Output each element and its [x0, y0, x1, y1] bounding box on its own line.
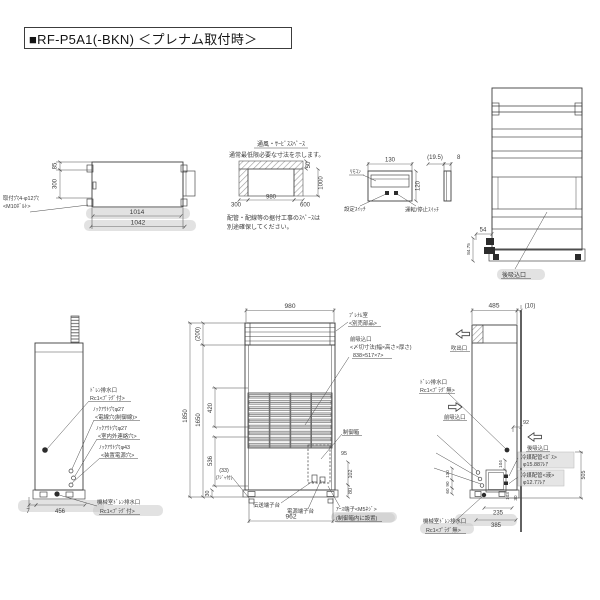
liquid-pipe-joint: [504, 482, 508, 486]
blow-outlet: [472, 325, 483, 343]
dim-30: 30: [513, 495, 518, 501]
top-view: 1014 1042 85 300 取付穴4-φ12穴 <M10ﾎﾞﾙﾄ>: [3, 162, 196, 231]
machine-drain-label-1: 機械室ﾄﾞﾚﾝ排水口: [97, 498, 140, 506]
dim-385: 385: [491, 523, 502, 529]
drain-label-2: Rc1<ﾌﾟﾗｸﾞ付>: [90, 394, 125, 402]
dim-102: 102: [348, 470, 354, 479]
plenum-label-2: <別売部品>: [349, 319, 377, 327]
machine-drain-label-1: 機械室ﾄﾞﾚﾝ排水口: [423, 517, 466, 525]
service-space-view: 通風・ｻｰﾋﾞｽｽﾍﾟｰｽ 通常最低限必要な寸法を示します。 300 980 6…: [227, 140, 325, 231]
service-space-heading: 通風・ｻｰﾋﾞｽｽﾍﾟｰｽ: [257, 140, 305, 148]
rear-inlet-label: 後吸込口: [527, 444, 549, 452]
rear-inlet-label: 後吸込口: [502, 271, 526, 279]
blow-outlet-arrow-icon: [456, 330, 470, 338]
knockout-hole: [480, 484, 484, 488]
base: [243, 490, 338, 497]
front-inlet-label: 前吸込口: [444, 413, 466, 421]
dim-inner-width: 1014: [130, 209, 145, 216]
setting-switch-label: 設定ｽｲｯﾁ: [344, 205, 366, 213]
dim-235: 235: [493, 511, 504, 517]
dim-outer-width: 1042: [131, 220, 146, 227]
dim-width: 130: [385, 158, 396, 164]
drain-outlet: [42, 447, 48, 453]
mount-hole-label: 取付穴4-φ12穴: [3, 194, 39, 202]
plenum-label-1: ﾌﾟﾚﾅﾑ室: [349, 311, 368, 319]
knockout27a-label-2: <電線穴(制御線)>: [95, 413, 137, 421]
remote-label: ﾘﾓｺﾝ: [350, 169, 361, 176]
left-side-view: 7 456 ﾄﾞﾚﾝ排水口 Rc1<ﾌﾟﾗｸﾞ付> ﾉｯｸｱｳﾄ穴φ27 <電線…: [18, 316, 163, 516]
control-box-label: 制御箱: [343, 428, 360, 436]
dim-top: 50: [306, 161, 312, 168]
panel-outline: [368, 171, 412, 201]
dim-505: 505: [581, 471, 587, 480]
right-side-view: 485 (10) 吹出口 ﾄﾞﾚﾝ排水口 Rc1<ﾌﾟﾗｸﾞ無> 前吸込口 92…: [419, 303, 587, 535]
gas-pipe-label-2: φ15.88ﾌﾚｱ: [523, 461, 548, 468]
dim-30: 30: [205, 491, 211, 497]
drain-label-1: ﾄﾞﾚﾝ排水口: [90, 386, 117, 394]
machine-drain-outlet: [54, 491, 59, 496]
plenum-side-profile: [71, 316, 79, 343]
earth-terminal-label-1: ｱｰｽ端子<M5ﾈｼﾞ>: [336, 505, 377, 513]
dim-90: 90: [445, 481, 450, 487]
adjuster-foot: [328, 499, 333, 503]
dim-33: (33): [219, 468, 229, 474]
foot: [248, 492, 255, 497]
plenum-chamber: [245, 323, 335, 345]
band: [492, 151, 582, 158]
dim-1650: 1650: [196, 413, 202, 427]
dim-980: 980: [284, 303, 295, 310]
dim-536: 536: [208, 455, 214, 466]
knockout27b-label-1: ﾉｯｸｱｳﾄ穴φ27: [96, 424, 127, 432]
liquid-pipe-label-2: φ12.7ﾌﾚｱ: [523, 479, 545, 486]
drain-fitting: [486, 238, 494, 245]
dim-95: 95: [341, 451, 347, 457]
dim-104: 104: [498, 460, 503, 468]
dim-130: 130: [445, 470, 450, 478]
run-stop-switch-label: 運転/停止ｽｲｯﾁ: [405, 206, 439, 214]
drain-fitting: [484, 247, 495, 254]
dim-depth: 300: [53, 178, 59, 189]
knockout-hole: [478, 477, 482, 481]
grille-mullion: [290, 393, 292, 448]
front-inlet-label-2: <〆切寸法(幅×高さ×厚さ): [350, 343, 412, 351]
clearance-wall-left: [239, 169, 248, 196]
dim-depth-top: 85: [53, 162, 59, 169]
drawing-canvas: 1014 1042 85 300 取付穴4-φ12穴 <M10ﾎﾞﾙﾄ> 通風・…: [0, 0, 600, 600]
machine-drain-label-2: Rc1<ﾌﾟﾗｸﾞ付>: [100, 507, 135, 515]
blow-outlet-label: 吹出口: [451, 344, 467, 352]
side-protrusion: [183, 171, 195, 196]
machine-compartment: [486, 470, 506, 492]
clearance-wall-right: [294, 169, 303, 196]
rear-view-dimensions: [473, 212, 547, 269]
rail-bracket: [575, 103, 582, 115]
dim-side: 1000: [319, 176, 325, 190]
dim-92: 92: [523, 420, 529, 426]
rear-view: 54 84.75 後吸込口: [466, 88, 585, 280]
knockout-hole: [72, 476, 76, 480]
foot: [575, 254, 581, 260]
dim-485: 485: [488, 303, 499, 310]
liquid-pipe-label-1: 冷媒配管<液>: [521, 471, 554, 479]
panel-side-outline: [444, 171, 451, 201]
gas-pipe-label-1: 冷媒配管<ｶﾞｽ>: [521, 453, 557, 461]
left-side-dimensions: [29, 401, 100, 509]
machine-drain-label-2: Rc1<ﾌﾟﾗｸﾞ無>: [426, 526, 461, 534]
remote-display: [371, 175, 409, 187]
dim-1850: 1850: [183, 409, 189, 423]
foot: [40, 492, 47, 497]
dim-10: (10): [525, 304, 536, 310]
dim-left: 300: [231, 203, 242, 209]
dim-80: 80: [348, 488, 354, 494]
band: [492, 217, 582, 229]
rear-inlet-opening: [492, 177, 582, 209]
dim-right: 600: [300, 203, 311, 209]
foot: [493, 254, 499, 260]
unit-outline: [35, 343, 83, 490]
base: [489, 249, 585, 261]
knockout43-label-2: <装置電源穴>: [101, 451, 134, 459]
dim-456: 456: [55, 509, 66, 515]
knockout43-label-1: ﾉｯｸｱｳﾄ穴φ43: [99, 443, 130, 451]
knockout-hole: [476, 471, 480, 475]
unit-outline: [472, 325, 517, 490]
mount-tab: [181, 199, 187, 206]
control-box: [308, 445, 330, 483]
compressor: [489, 473, 504, 490]
dim-60: 60: [445, 488, 450, 494]
grille-mullion: [310, 393, 312, 448]
grille-mullion: [269, 393, 271, 448]
dim-center: 980: [266, 195, 277, 201]
power-terminal-label: 電源端子台: [287, 507, 314, 515]
foot: [66, 492, 73, 497]
power-terminal: [320, 477, 325, 482]
front-inlet-label-1: 前吸込口: [350, 335, 372, 343]
control-panel-dimensions: [360, 162, 451, 206]
knockout-hole: [69, 469, 73, 473]
knockout-hole: [69, 483, 73, 487]
knockout27b-label-2: <室内外連絡穴>: [98, 432, 137, 440]
edge-detail: [93, 182, 96, 189]
rear-inlet-arrow-icon: [528, 433, 542, 441]
earth-terminal-label-2: (制御箱内に設置): [336, 514, 378, 522]
dim-200: (200): [196, 327, 202, 341]
clearance-wall-top: [239, 161, 303, 169]
service-note-1: 配管・配線等の据付工事のｽﾍﾟｰｽは: [227, 214, 320, 222]
band: [492, 129, 582, 137]
drawing-sheet: ■RF-P5A1(-BKN) ＜プレナム取付時＞: [0, 0, 600, 600]
drain-label-1: ﾄﾞﾚﾝ排水口: [420, 378, 447, 386]
front-inlet-arrow-icon: [449, 403, 463, 411]
gas-pipe-joint: [504, 475, 508, 479]
front-view: 980 (200) 1850 1650 420 536 (33) (ｱｼﾞｬ付)…: [183, 303, 412, 523]
control-panel-view: 130 120 (19.5) 8 ﾘﾓｺﾝ 設定ｽｲｯﾁ 運転/停止ｽｲｯﾁ: [344, 155, 461, 214]
dim-depth: (19.5): [427, 155, 443, 161]
mount-hole-label2: <M10ﾎﾞﾙﾄ>: [3, 203, 31, 210]
service-space-subheading: 通常最低限必要な寸法を示します。: [229, 151, 324, 159]
dim-thickness: 8: [457, 155, 461, 161]
dim-54: 54: [480, 228, 487, 234]
dim-height: 120: [416, 180, 422, 191]
adjuster-note: (ｱｼﾞｬ付): [216, 474, 233, 481]
knockout27a-label-1: ﾉｯｸｱｳﾄ穴φ27: [93, 405, 124, 413]
unit-outline: [92, 162, 183, 207]
service-note-2: 別途確保してください。: [227, 223, 293, 231]
unit-footprint: [248, 169, 294, 196]
rail-bracket: [492, 103, 499, 115]
dim-84-75: 84.75: [466, 243, 471, 255]
drain-label-2: Rc1<ﾌﾟﾗｸﾞ無>: [420, 386, 455, 394]
front-inlet-label-3: 838×517×7>: [353, 353, 383, 359]
dim-420: 420: [208, 402, 214, 413]
transmission-terminal-label: 伝送端子台: [253, 501, 280, 509]
dim-103: 103: [505, 492, 510, 500]
foot: [327, 492, 334, 497]
foot: [475, 492, 481, 497]
